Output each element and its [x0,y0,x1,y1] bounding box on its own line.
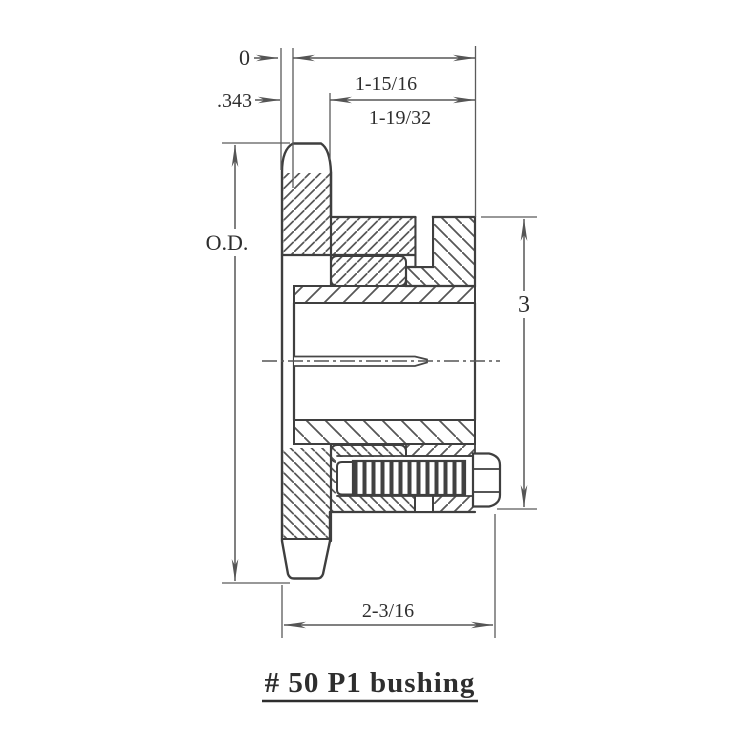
upper-barrel-wall [294,286,475,303]
label-taper-length: 1-19/32 [369,107,431,129]
label-bushing-length: 1-15/16 [355,73,417,95]
technical-drawing-page: 0 .343 1-15/16 1-19/32 O.D. 3 2-3/16 # 5… [0,0,750,750]
upper-plate-hatch [282,173,330,255]
extension-lines [222,46,537,638]
lower-hub-lip [353,496,415,512]
label-flange-diameter: 3 [518,292,530,318]
lower-plate-hatch [282,448,331,538]
upper-taper-block [331,256,406,286]
bolt-pilot [337,462,353,495]
lower-barrel-wall [294,420,475,444]
bolt-threads [353,461,465,495]
upper-flange-slot [417,218,433,266]
label-overall-width: 2-3/16 [362,600,414,622]
lower-flange-slot [416,497,432,511]
lower-flange-upper [406,444,475,456]
dimension-labels: 0 .343 1-15/16 1-19/32 O.D. 3 2-3/16 [206,45,530,622]
upper-hub-hatch [331,217,416,255]
sprocket-bushing-drawing: 0 .343 1-15/16 1-19/32 O.D. 3 2-3/16 # 5… [0,0,750,750]
drawing-title: # 50 P1 bushing [262,667,478,701]
label-datum-zero: 0 [239,45,250,70]
lower-flange-lip [433,496,475,512]
title-text: # 50 P1 bushing [265,667,476,699]
bolt-head [473,454,500,507]
label-outer-diameter: O.D. [206,230,249,255]
label-plate-offset: .343 [217,90,252,112]
